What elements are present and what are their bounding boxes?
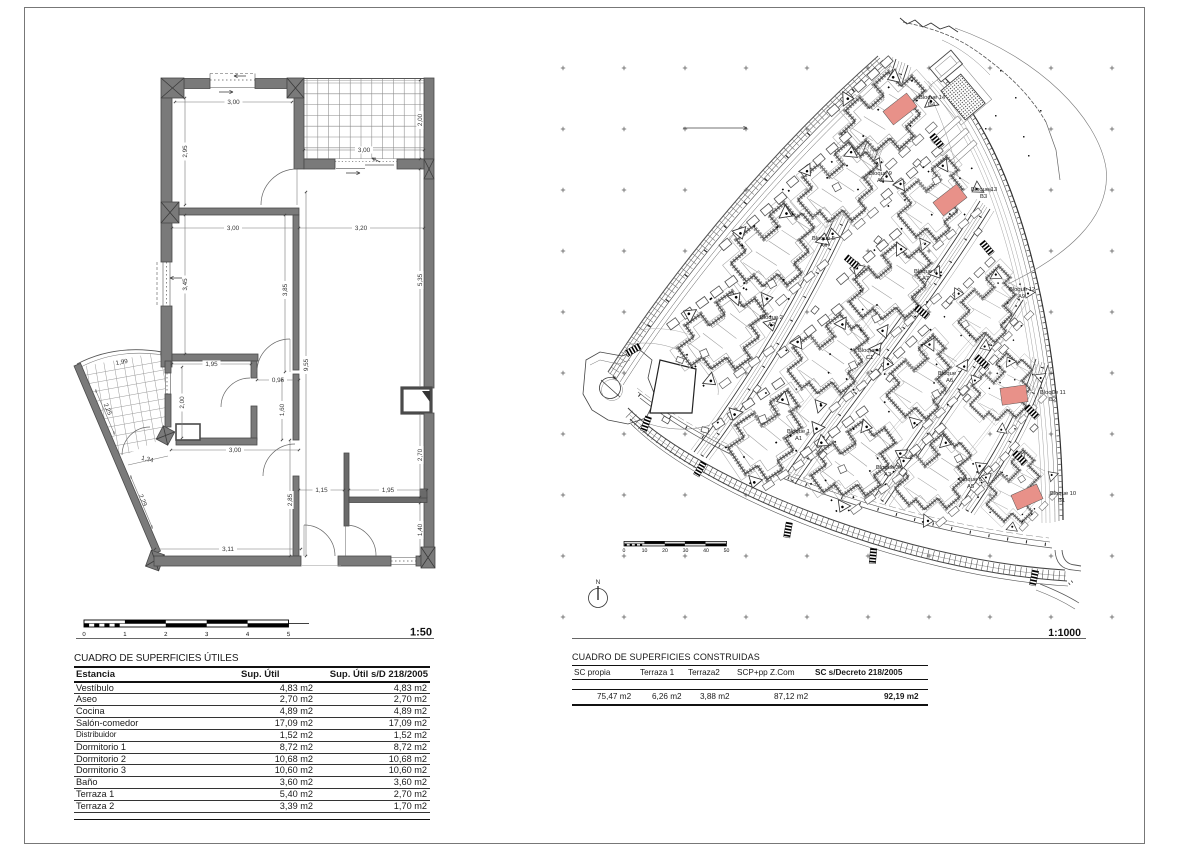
svg-text:4: 4 <box>246 631 250 638</box>
svg-text:C1: C1 <box>866 354 873 361</box>
svg-text:Bloque 10: Bloque 10 <box>1050 490 1076 497</box>
svg-text:1,95: 1,95 <box>382 487 395 494</box>
svg-text:A6: A6 <box>946 377 953 384</box>
svg-text:10: 10 <box>642 548 648 554</box>
svg-text:Bloque 14: Bloque 14 <box>919 94 946 101</box>
svg-text:1,40: 1,40 <box>417 523 424 536</box>
svg-text:1:50: 1:50 <box>410 627 432 639</box>
svg-text:2,85: 2,85 <box>287 493 294 506</box>
svg-text:3,00: 3,00 <box>227 225 240 232</box>
svg-text:Bloque 1: Bloque 1 <box>787 428 810 435</box>
svg-text:A7: A7 <box>922 276 929 282</box>
svg-text:30: 30 <box>683 548 689 554</box>
svg-text:2,70: 2,70 <box>417 448 424 461</box>
svg-text:3,00: 3,00 <box>229 447 242 454</box>
svg-text:50: 50 <box>724 548 730 554</box>
svg-text:A9: A9 <box>1018 293 1025 300</box>
svg-text:3,00: 3,00 <box>358 147 371 154</box>
svg-text:A1: A1 <box>795 436 802 442</box>
svg-text:Bloque 6: Bloque 6 <box>959 476 982 483</box>
svg-text:40: 40 <box>703 548 709 554</box>
svg-text:0: 0 <box>623 548 626 554</box>
svg-text:N: N <box>596 579 601 586</box>
svg-text:B2: B2 <box>1049 396 1056 403</box>
svg-text:2: 2 <box>164 631 168 638</box>
svg-text:5,35: 5,35 <box>417 273 424 286</box>
svg-text:1:1000: 1:1000 <box>1048 627 1081 639</box>
svg-text:9,55: 9,55 <box>303 358 310 371</box>
svg-text:Bloque 8: Bloque 8 <box>914 268 937 275</box>
svg-text:1,60: 1,60 <box>279 403 286 416</box>
svg-text:3,85: 3,85 <box>282 283 289 296</box>
svg-text:20: 20 <box>662 548 668 554</box>
svg-text:A2: A2 <box>768 321 775 328</box>
svg-text:3,20: 3,20 <box>355 225 368 232</box>
svg-text:Bloque 13: Bloque 13 <box>971 186 997 193</box>
svg-text:Bloque 12: Bloque 12 <box>1009 286 1035 293</box>
svg-text:5: 5 <box>287 631 291 638</box>
svg-text:0,95: 0,95 <box>272 377 285 384</box>
svg-text:A3: A3 <box>884 471 891 478</box>
svg-text:0: 0 <box>82 631 86 638</box>
svg-text:3,00: 3,00 <box>227 99 240 106</box>
svg-text:Bloque 7: Bloque 7 <box>938 370 961 377</box>
svg-text:2,00: 2,00 <box>179 396 186 409</box>
svg-text:Bloque 11: Bloque 11 <box>1040 389 1066 396</box>
svg-text:A8: A8 <box>877 177 884 184</box>
svg-text:A5: A5 <box>967 484 974 490</box>
svg-text:Bloque 9: Bloque 9 <box>869 170 892 177</box>
svg-text:B4: B4 <box>928 102 936 108</box>
svg-text:3,11: 3,11 <box>222 546 234 553</box>
svg-text:3,45: 3,45 <box>182 278 189 291</box>
svg-text:1,99: 1,99 <box>115 358 129 367</box>
svg-text:1,95: 1,95 <box>205 361 218 368</box>
svg-text:B1: B1 <box>1058 498 1065 504</box>
svg-text:2,95: 2,95 <box>182 145 189 158</box>
svg-text:Bloque 2: Bloque 2 <box>760 314 783 321</box>
svg-text:2,00: 2,00 <box>417 113 424 126</box>
svg-text:1: 1 <box>123 631 127 638</box>
svg-text:A4: A4 <box>820 243 828 249</box>
svg-text:3: 3 <box>205 631 209 638</box>
svg-text:B3: B3 <box>980 193 987 200</box>
svg-text:Bloque 5: Bloque 5 <box>812 235 835 242</box>
svg-text:Bloque 4: Bloque 4 <box>858 347 882 354</box>
svg-text:1,15: 1,15 <box>315 487 328 494</box>
svg-text:Bloque 3: Bloque 3 <box>876 464 899 471</box>
